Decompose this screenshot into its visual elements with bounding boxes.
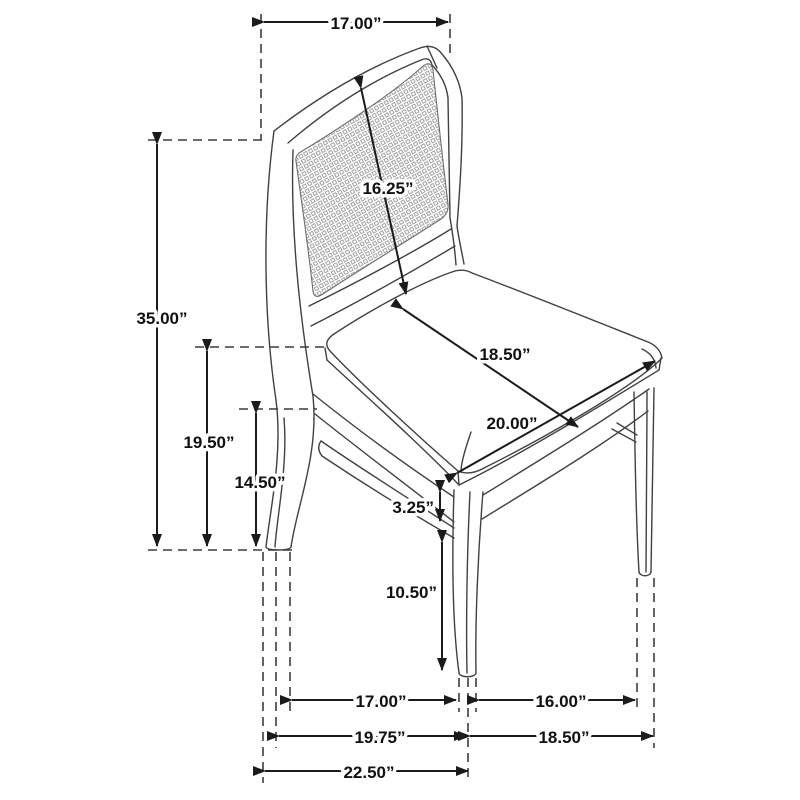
- dim-backrest-panel-label: 16.25”: [362, 179, 413, 198]
- dim-back-width-top-label: 17.00”: [330, 14, 381, 33]
- dim-front-width-outer: 19.75”: [279, 728, 466, 747]
- dim-front-width-outer-label: 19.75”: [354, 728, 405, 747]
- dim-front-leg-span-inner: 17.00”: [292, 692, 456, 711]
- dim-overall-depth: 22.50”: [265, 763, 468, 782]
- corner-bracket: [612, 429, 636, 442]
- chair-line-art: [266, 46, 662, 677]
- dim-side-depth-outer: 18.50”: [470, 728, 653, 747]
- dim-apron-thickness-label: 3.25”: [392, 498, 434, 517]
- dim-side-depth-outer-label: 18.50”: [538, 728, 589, 747]
- right-leg: [634, 388, 654, 576]
- front-leg: [453, 490, 483, 677]
- dim-seat-rail-height: 14.50”: [234, 409, 317, 546]
- dim-side-leg-span-inner: 16.00”: [479, 692, 635, 711]
- chair-dimension-diagram: 17.00” 16.25” 35.00” 19.50” 14.50” 18.50…: [0, 0, 800, 800]
- dim-overall-height-label: 35.00”: [136, 309, 187, 328]
- dim-overall-depth-label: 22.50”: [343, 763, 394, 782]
- dim-leg-height-label: 10.50”: [386, 583, 437, 602]
- left-stretcher-bar: [319, 441, 454, 538]
- diagram-canvas: 17.00” 16.25” 35.00” 19.50” 14.50” 18.50…: [0, 0, 800, 800]
- dim-side-leg-span-inner-label: 16.00”: [535, 692, 586, 711]
- dim-seat-height-label: 19.50”: [183, 433, 234, 452]
- dim-seat-depth-label: 18.50”: [479, 345, 530, 364]
- dim-seat-rail-height-label: 14.50”: [234, 473, 285, 492]
- dim-leg-height: 10.50”: [386, 542, 442, 670]
- dim-seat-width-label: 20.00”: [486, 414, 537, 433]
- dim-apron-thickness: 3.25”: [392, 492, 440, 521]
- dim-front-leg-span-inner-label: 17.00”: [355, 692, 406, 711]
